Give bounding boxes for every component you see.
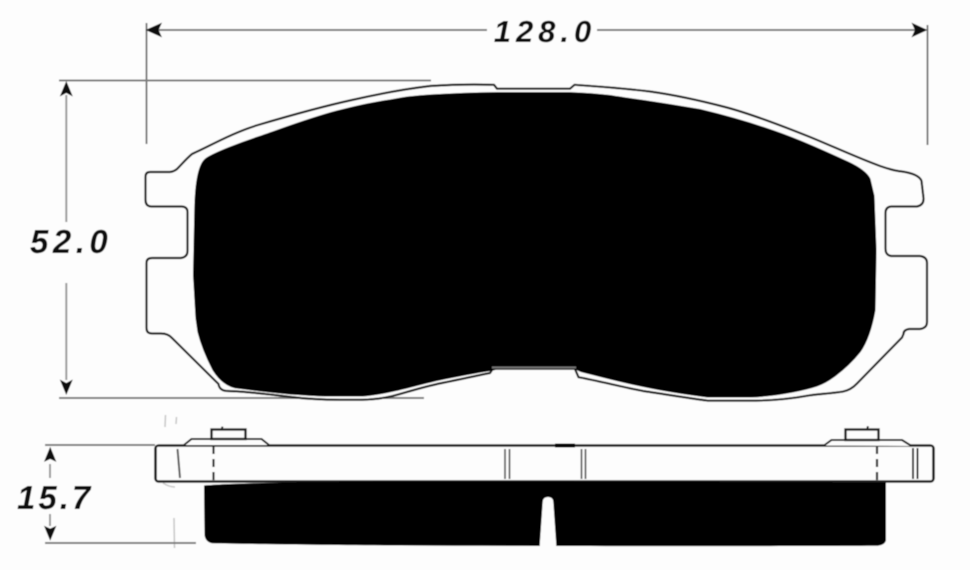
svg-text:52.0: 52.0 [30, 223, 112, 260]
svg-text:128.0: 128.0 [494, 14, 597, 49]
svg-text:15.7: 15.7 [17, 479, 93, 516]
